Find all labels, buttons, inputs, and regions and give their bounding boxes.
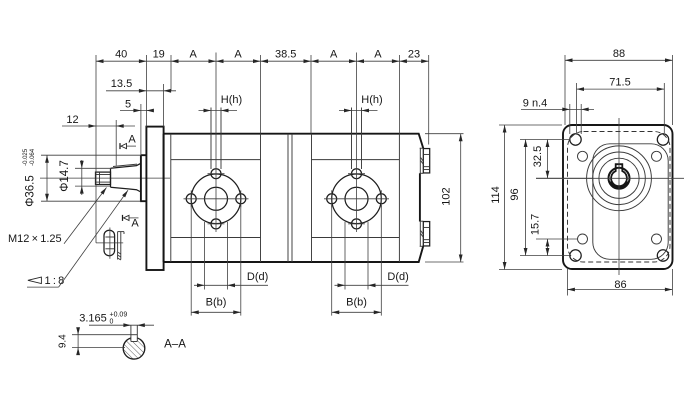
svg-text:88: 88 bbox=[613, 48, 625, 60]
svg-text:A: A bbox=[128, 134, 136, 146]
svg-text:12: 12 bbox=[66, 114, 78, 126]
svg-text:9 n.4: 9 n.4 bbox=[523, 98, 547, 110]
svg-text:96: 96 bbox=[509, 188, 521, 200]
svg-text:71.5: 71.5 bbox=[609, 77, 630, 89]
svg-text:32.5: 32.5 bbox=[532, 146, 544, 167]
svg-text:19: 19 bbox=[153, 49, 165, 61]
svg-text:86: 86 bbox=[614, 279, 626, 291]
svg-text:1 : 8: 1 : 8 bbox=[45, 275, 65, 287]
svg-text:D(d): D(d) bbox=[247, 271, 268, 283]
svg-text:3.165: 3.165 bbox=[79, 313, 107, 325]
svg-text:114: 114 bbox=[490, 186, 502, 204]
svg-text:9.4: 9.4 bbox=[58, 334, 69, 348]
svg-text:-0.064: -0.064 bbox=[30, 148, 36, 166]
svg-text:23: 23 bbox=[408, 49, 420, 61]
svg-text:A: A bbox=[131, 218, 139, 230]
svg-text:H(h): H(h) bbox=[221, 94, 242, 106]
svg-text:A: A bbox=[330, 49, 338, 61]
svg-text:102: 102 bbox=[441, 187, 453, 205]
svg-text:Φ14.7: Φ14.7 bbox=[59, 160, 71, 192]
svg-text:0: 0 bbox=[110, 319, 114, 326]
svg-text:+0.09: +0.09 bbox=[110, 312, 128, 319]
svg-text:13.5: 13.5 bbox=[111, 78, 132, 90]
svg-text:H(h): H(h) bbox=[361, 94, 382, 106]
svg-text:-0.025: -0.025 bbox=[23, 148, 29, 166]
svg-text:M12 × 1.25: M12 × 1.25 bbox=[8, 233, 62, 245]
svg-text:A: A bbox=[190, 49, 198, 61]
svg-text:D(d): D(d) bbox=[387, 271, 408, 283]
svg-text:Φ36.5: Φ36.5 bbox=[25, 175, 37, 207]
svg-text:5: 5 bbox=[125, 99, 131, 111]
svg-text:38.5: 38.5 bbox=[275, 49, 296, 61]
svg-text:A: A bbox=[374, 49, 382, 61]
svg-text:A: A bbox=[234, 49, 242, 61]
svg-text:40: 40 bbox=[115, 49, 127, 61]
svg-text:15.7: 15.7 bbox=[529, 214, 541, 235]
svg-text:A–A: A–A bbox=[164, 339, 186, 351]
svg-text:B(b): B(b) bbox=[206, 297, 227, 309]
svg-text:B(b): B(b) bbox=[346, 297, 367, 309]
